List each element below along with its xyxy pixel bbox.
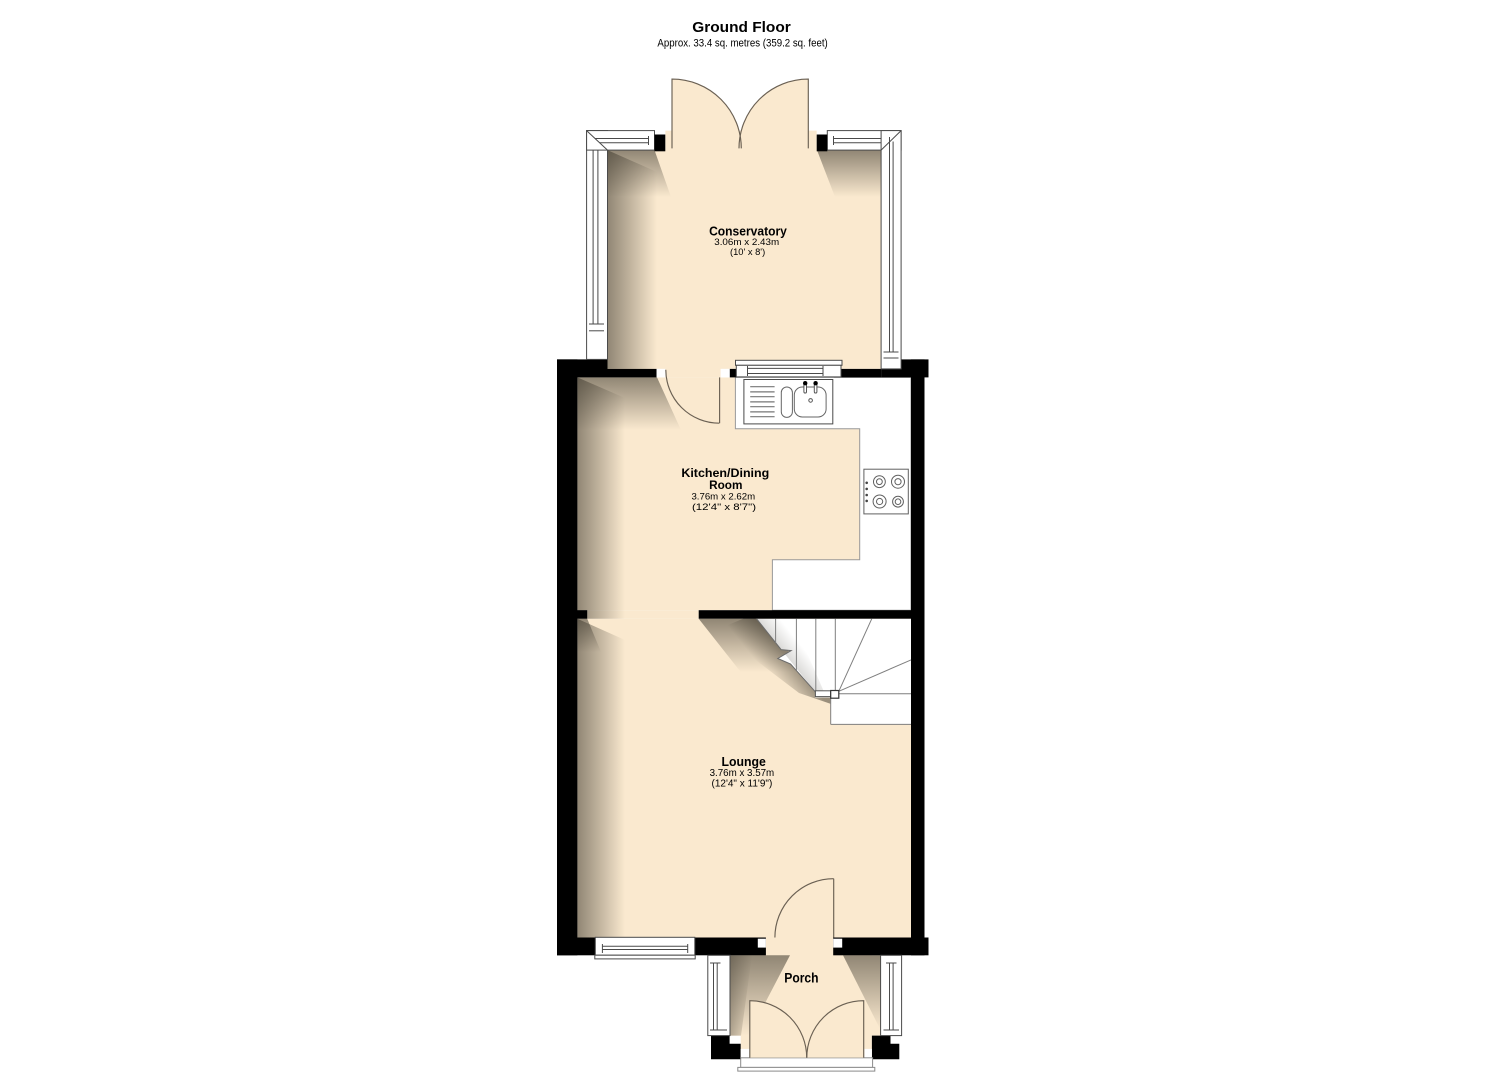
svg-text:Approx. 33.4 sq. metres (359.2: Approx. 33.4 sq. metres (359.2 sq. feet)	[657, 37, 828, 49]
svg-text:Ground Floor: Ground Floor	[692, 19, 791, 36]
svg-text:Lounge: Lounge	[722, 754, 766, 769]
svg-text:(12'4" x 8'7"): (12'4" x 8'7")	[692, 502, 756, 513]
svg-text:3.06m x 2.43m: 3.06m x 2.43m	[714, 237, 779, 248]
svg-text:Room: Room	[709, 478, 742, 492]
svg-text:(10' x 8'): (10' x 8')	[730, 247, 765, 258]
svg-text:Porch: Porch	[784, 970, 818, 985]
svg-text:3.76m x 3.57m: 3.76m x 3.57m	[710, 768, 775, 779]
svg-text:3.76m x 2.62m: 3.76m x 2.62m	[691, 491, 755, 502]
svg-text:(12'4" x 11'9"): (12'4" x 11'9")	[712, 779, 773, 790]
